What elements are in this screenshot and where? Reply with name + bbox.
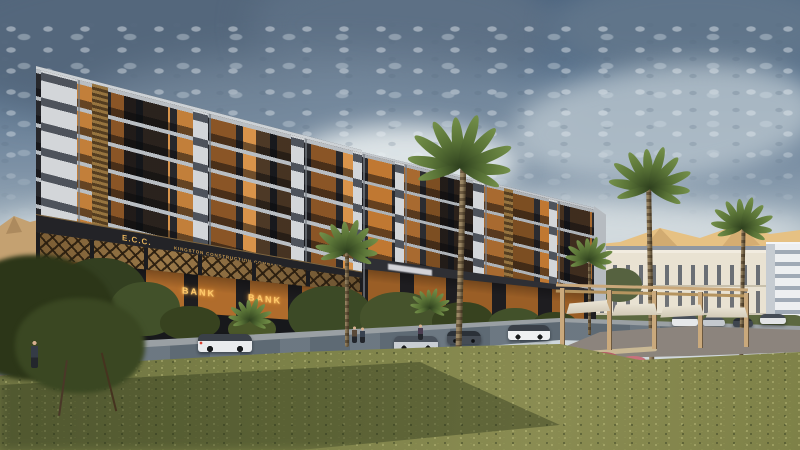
- wing-b-white-pillar: [392, 161, 407, 273]
- pedestrian: [352, 326, 357, 343]
- car-dark: [447, 331, 481, 344]
- pedestrian: [31, 340, 38, 368]
- pergola-post: [698, 292, 703, 348]
- car-distant-white: [760, 314, 786, 324]
- pedestrian: [418, 324, 423, 340]
- block-a-white-grid: [38, 70, 80, 229]
- car-white-hatchback: [198, 334, 252, 352]
- pedestrian: [360, 327, 365, 343]
- pergola-post: [652, 291, 657, 349]
- architectural-rendering: E.C.C. KINGSTON CONSTRUCTION COMPANY BAN…: [0, 0, 800, 450]
- pergola-post: [560, 288, 565, 348]
- bank-sign-left: BANK: [182, 285, 216, 299]
- car-distant-silver: [703, 317, 725, 326]
- block-a-white-pillar: [190, 109, 211, 262]
- pergola-post: [744, 293, 749, 347]
- car-white-suv: [508, 325, 550, 340]
- block-a-wood-louvre: [92, 83, 108, 235]
- pergola-post: [607, 290, 612, 350]
